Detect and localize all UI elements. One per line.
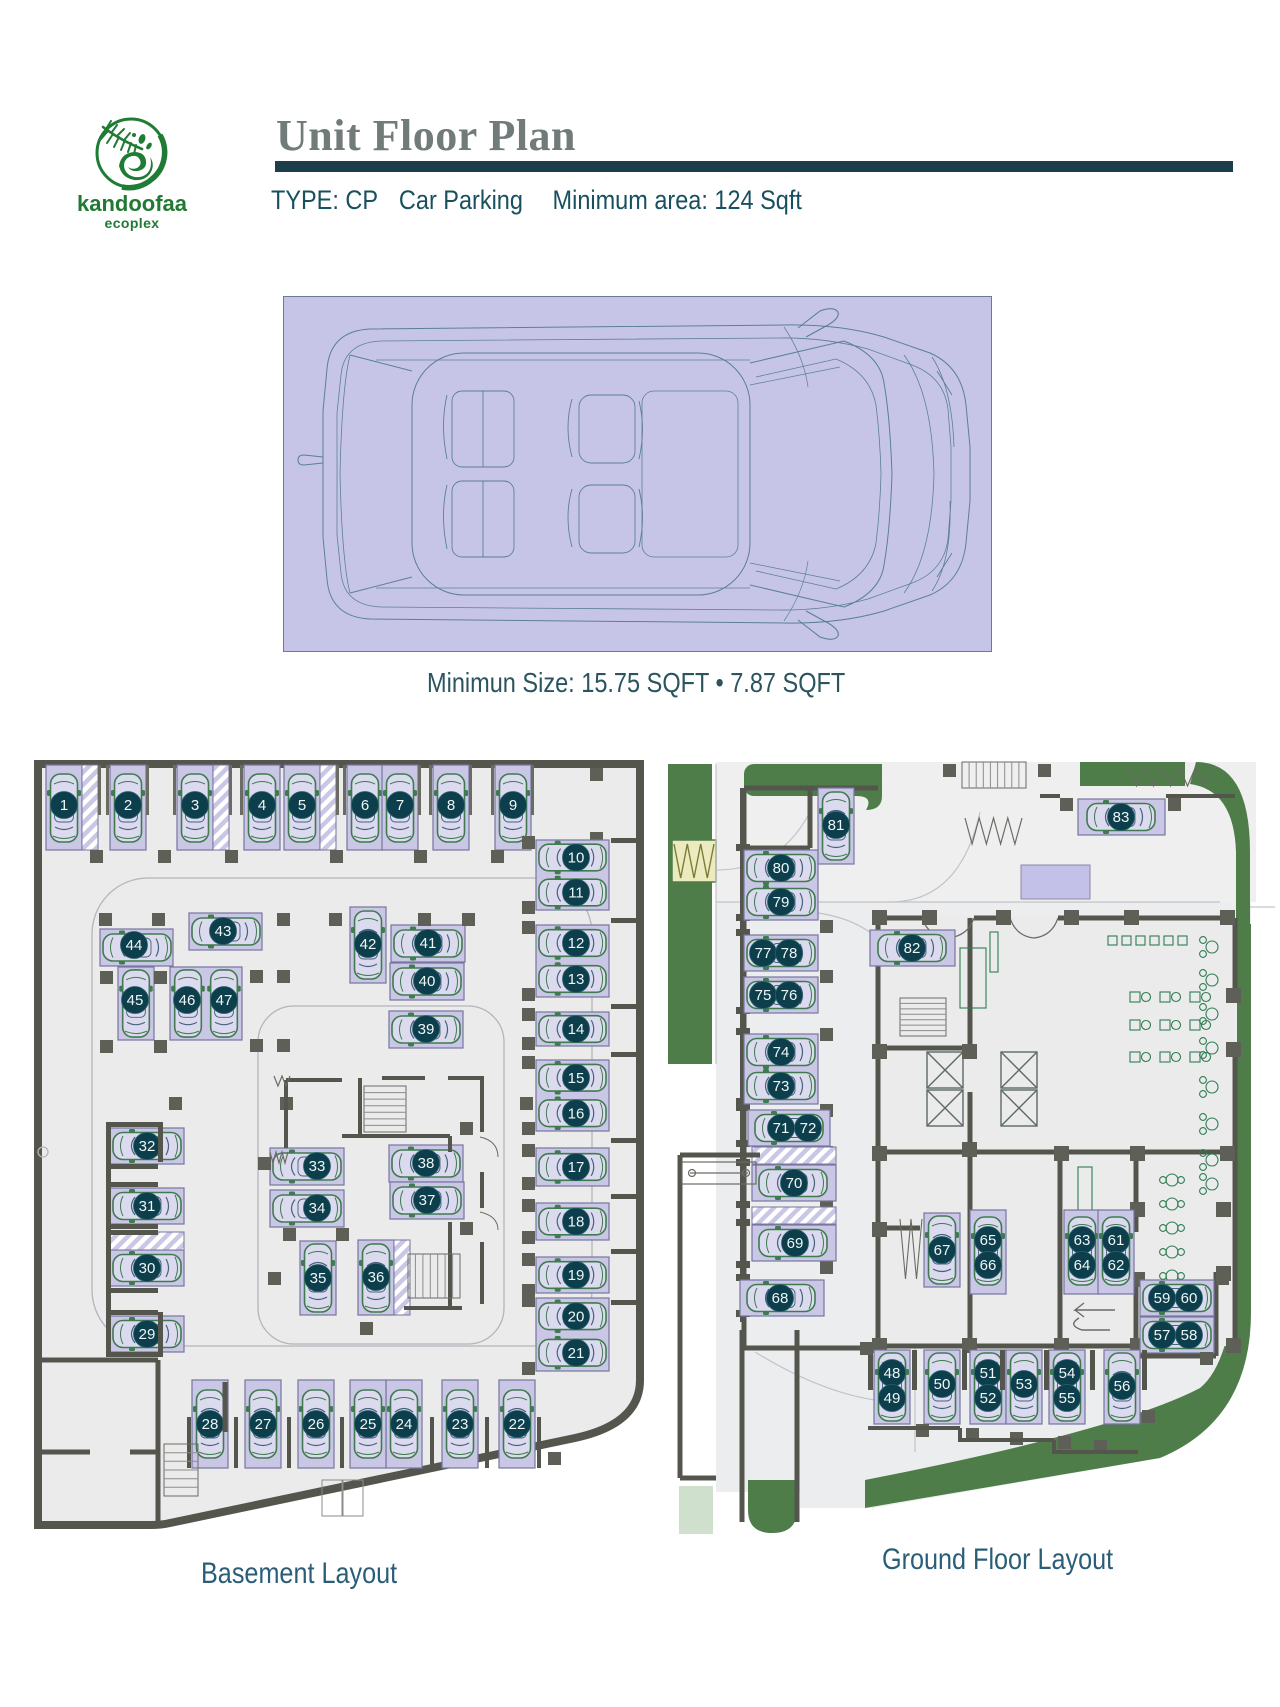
svg-text:4: 4 — [258, 797, 266, 814]
svg-text:40: 40 — [419, 973, 436, 990]
svg-text:29: 29 — [139, 1326, 156, 1343]
svg-text:38: 38 — [418, 1155, 435, 1172]
svg-text:25: 25 — [360, 1416, 377, 1433]
svg-text:5: 5 — [298, 797, 306, 814]
svg-text:19: 19 — [568, 1267, 585, 1284]
svg-text:56: 56 — [1114, 1378, 1131, 1395]
svg-text:48: 48 — [884, 1365, 901, 1382]
svg-text:79: 79 — [773, 894, 790, 911]
svg-text:66: 66 — [980, 1257, 997, 1274]
svg-text:17: 17 — [568, 1159, 585, 1176]
svg-text:44: 44 — [126, 937, 143, 954]
svg-text:59: 59 — [1154, 1290, 1171, 1307]
svg-text:31: 31 — [139, 1198, 156, 1215]
svg-text:61: 61 — [1108, 1232, 1125, 1249]
svg-text:12: 12 — [568, 935, 585, 952]
svg-text:62: 62 — [1108, 1257, 1125, 1274]
svg-text:57: 57 — [1154, 1327, 1171, 1344]
svg-text:68: 68 — [772, 1290, 789, 1307]
svg-text:11: 11 — [568, 885, 584, 902]
svg-text:60: 60 — [1181, 1290, 1198, 1307]
svg-text:83: 83 — [1113, 809, 1130, 826]
svg-text:63: 63 — [1074, 1232, 1091, 1249]
svg-text:76: 76 — [781, 987, 798, 1004]
svg-text:23: 23 — [452, 1416, 469, 1433]
svg-text:36: 36 — [368, 1269, 385, 1286]
svg-text:14: 14 — [568, 1021, 585, 1038]
svg-text:18: 18 — [568, 1214, 585, 1231]
svg-text:37: 37 — [419, 1192, 436, 1209]
svg-text:kandoofaa: kandoofaa — [77, 191, 188, 216]
svg-text:73: 73 — [773, 1078, 790, 1095]
svg-text:9: 9 — [509, 797, 517, 814]
svg-text:47: 47 — [216, 992, 233, 1009]
svg-text:13: 13 — [568, 971, 585, 988]
svg-text:20: 20 — [568, 1308, 585, 1325]
svg-text:70: 70 — [786, 1175, 803, 1192]
svg-text:30: 30 — [139, 1260, 156, 1277]
svg-text:53: 53 — [1016, 1376, 1033, 1393]
svg-text:8: 8 — [447, 797, 455, 814]
svg-text:77: 77 — [755, 945, 772, 962]
svg-text:15: 15 — [568, 1070, 585, 1087]
svg-text:67: 67 — [934, 1242, 951, 1259]
svg-text:74: 74 — [773, 1044, 790, 1061]
svg-text:81: 81 — [828, 817, 845, 834]
svg-text:71: 71 — [773, 1120, 790, 1137]
svg-text:46: 46 — [179, 992, 196, 1009]
svg-text:ecoplex: ecoplex — [105, 215, 160, 231]
svg-text:41: 41 — [420, 935, 437, 952]
svg-text:3: 3 — [191, 797, 199, 814]
svg-text:7: 7 — [396, 797, 404, 814]
svg-text:51: 51 — [980, 1365, 997, 1382]
svg-text:28: 28 — [202, 1416, 219, 1433]
svg-text:16: 16 — [568, 1105, 585, 1122]
svg-text:24: 24 — [396, 1416, 413, 1433]
svg-text:75: 75 — [755, 987, 772, 1004]
svg-text:50: 50 — [934, 1376, 951, 1393]
svg-text:54: 54 — [1059, 1365, 1076, 1382]
svg-text:43: 43 — [215, 923, 232, 940]
svg-text:69: 69 — [787, 1235, 804, 1252]
svg-text:58: 58 — [1181, 1327, 1198, 1344]
svg-text:33: 33 — [309, 1158, 326, 1175]
svg-text:64: 64 — [1074, 1257, 1091, 1274]
svg-text:82: 82 — [904, 940, 921, 957]
svg-text:35: 35 — [310, 1270, 327, 1287]
svg-text:39: 39 — [418, 1021, 435, 1038]
svg-text:10: 10 — [568, 850, 585, 867]
svg-text:45: 45 — [127, 992, 144, 1009]
svg-text:34: 34 — [309, 1200, 326, 1217]
svg-text:2: 2 — [124, 797, 132, 814]
svg-text:72: 72 — [800, 1120, 817, 1137]
svg-text:52: 52 — [980, 1390, 997, 1407]
svg-text:65: 65 — [980, 1232, 997, 1249]
svg-text:78: 78 — [781, 945, 798, 962]
svg-text:32: 32 — [139, 1138, 156, 1155]
svg-text:80: 80 — [773, 860, 790, 877]
svg-text:42: 42 — [360, 936, 377, 953]
svg-text:6: 6 — [361, 797, 369, 814]
svg-text:49: 49 — [884, 1390, 901, 1407]
svg-text:55: 55 — [1059, 1390, 1076, 1407]
svg-text:27: 27 — [255, 1416, 272, 1433]
svg-text:1: 1 — [60, 797, 68, 814]
svg-text:21: 21 — [568, 1345, 585, 1362]
svg-text:22: 22 — [509, 1416, 526, 1433]
svg-text:26: 26 — [308, 1416, 325, 1433]
